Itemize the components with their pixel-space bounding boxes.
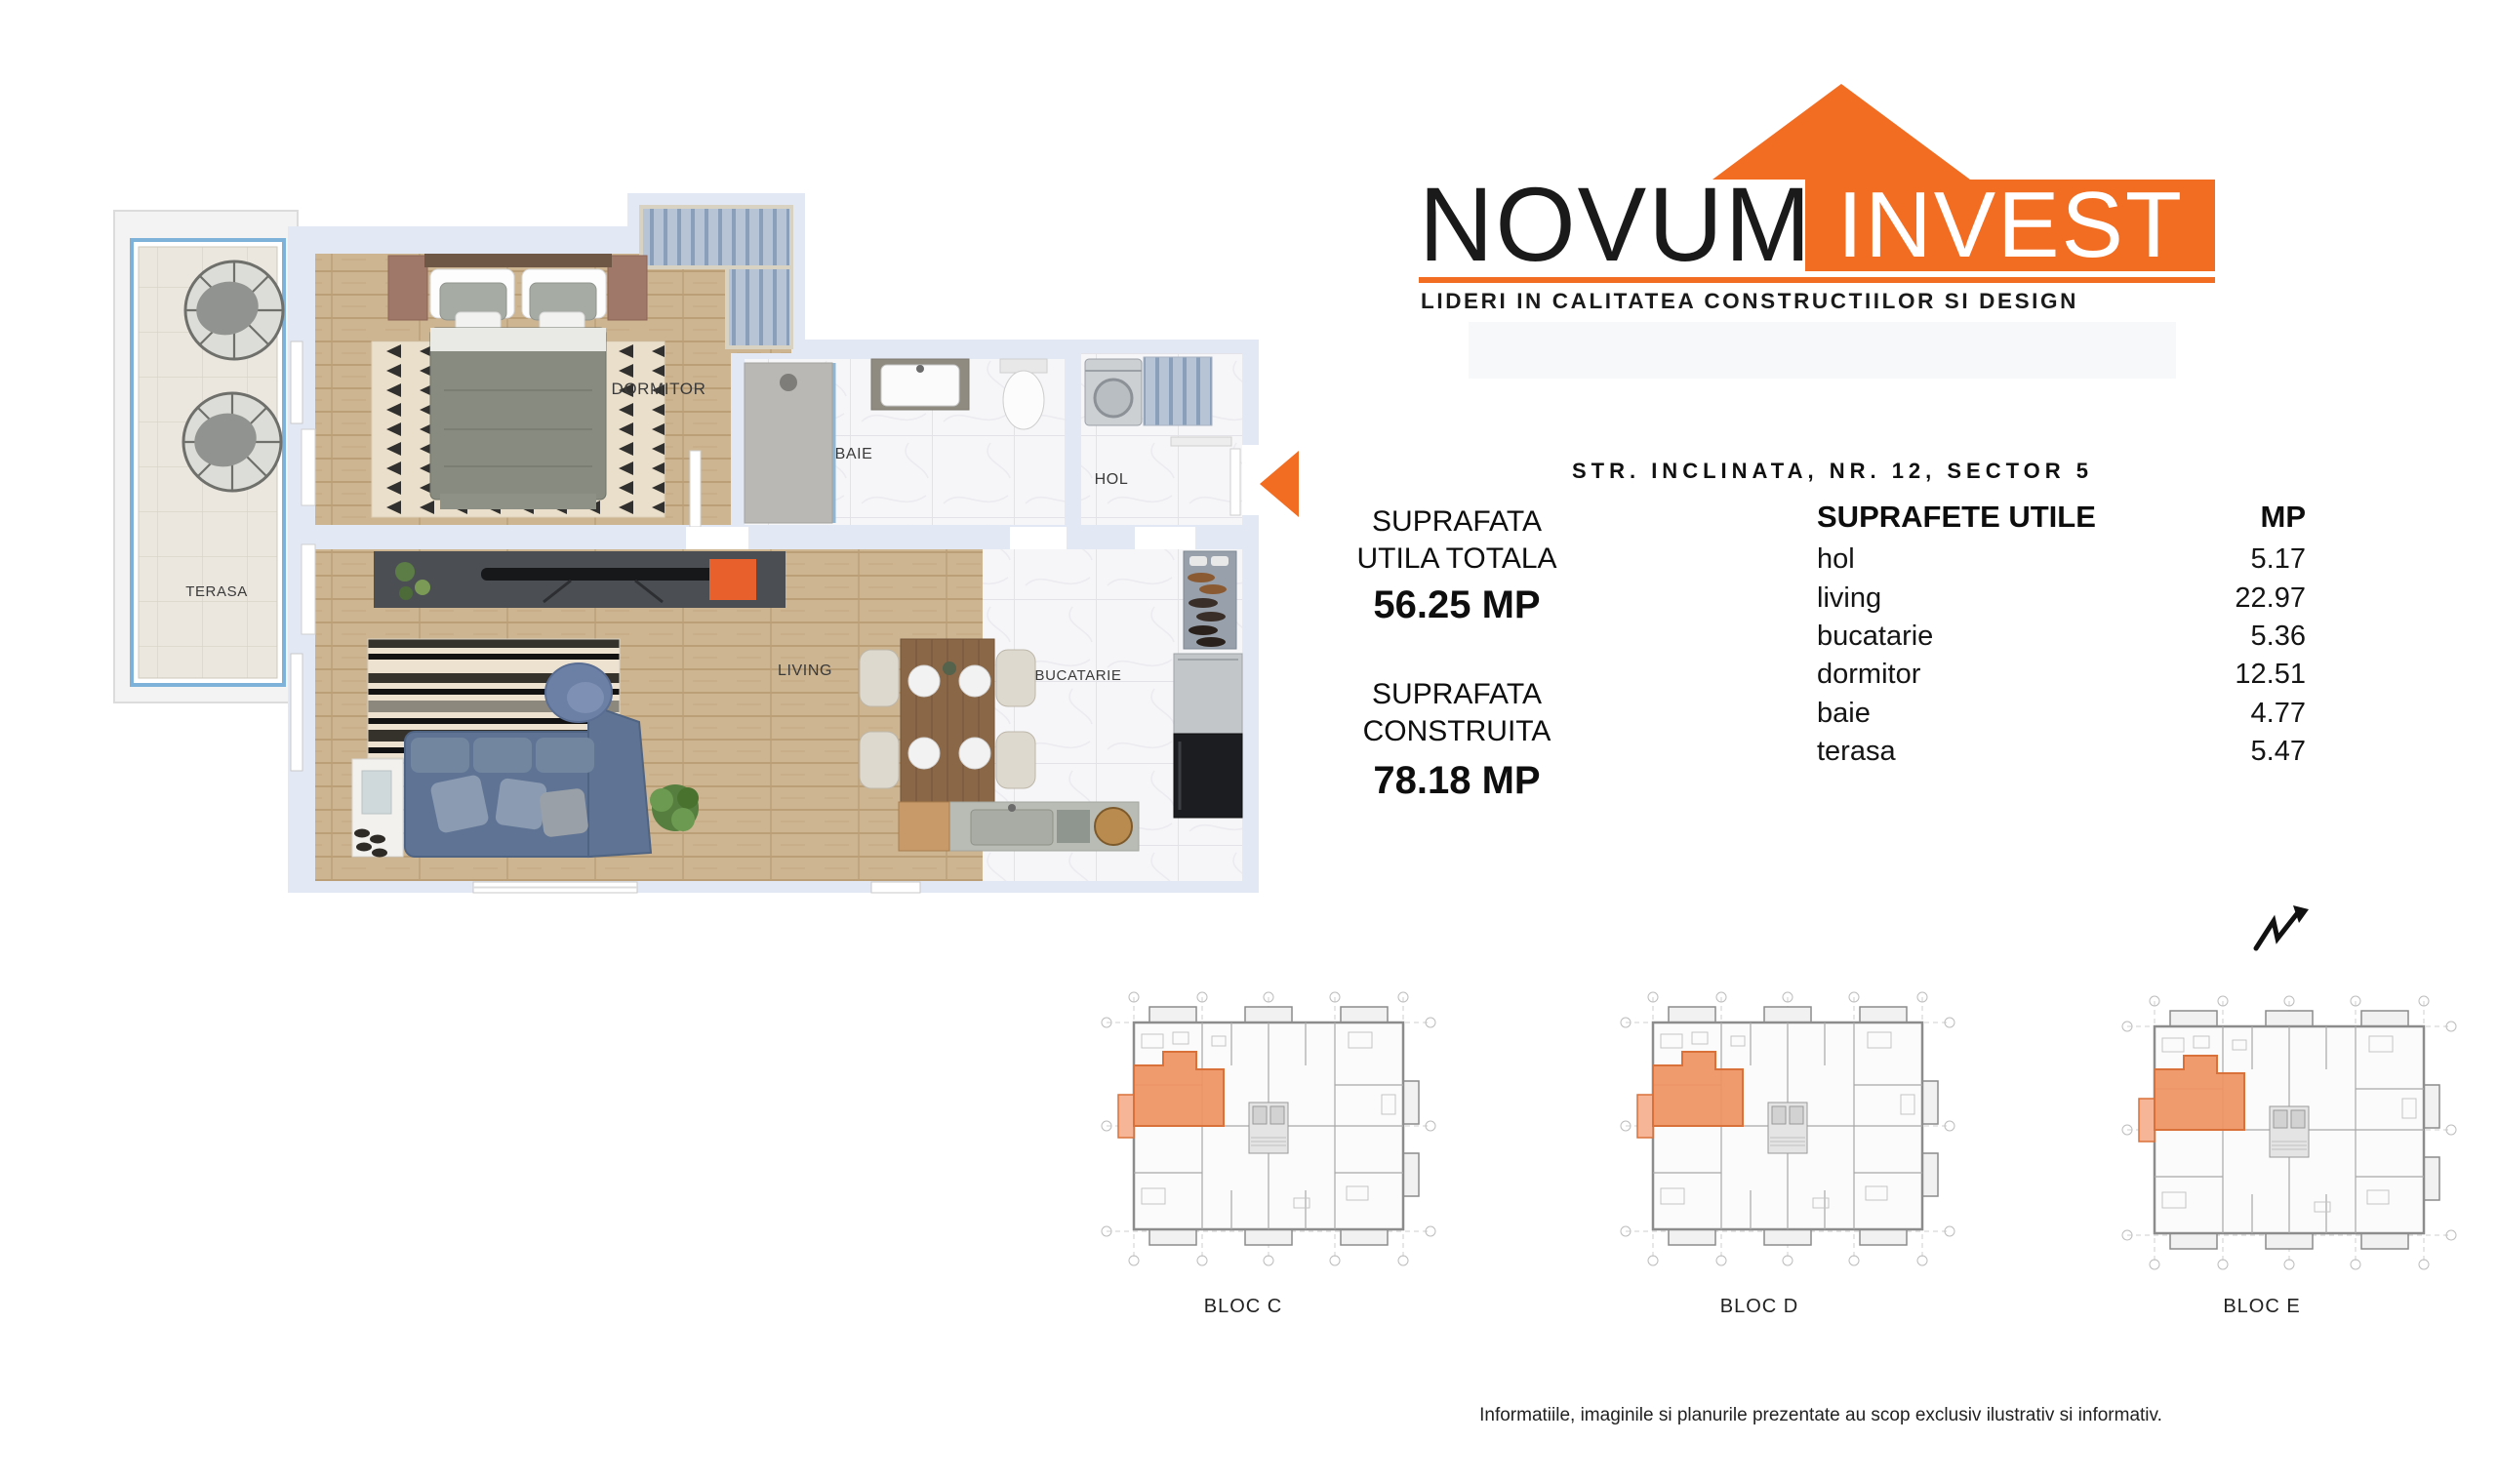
shoe-rack bbox=[1184, 551, 1236, 649]
bloc-d-plan bbox=[1614, 987, 1961, 1270]
row-mp: 22.97 bbox=[2235, 582, 2306, 615]
row-room: living bbox=[1817, 582, 1881, 615]
room-label-hol: HOL bbox=[1053, 471, 1170, 489]
row-mp: 4.77 bbox=[2251, 698, 2306, 730]
bedroom-door-leaf bbox=[690, 451, 701, 527]
drying-rack bbox=[1144, 357, 1212, 425]
north-arrow-icon bbox=[2244, 900, 2313, 960]
bloc-e-label: BLOC E bbox=[2115, 1296, 2408, 1318]
row-room: dormitor bbox=[1817, 659, 1920, 691]
logo-brand-primary: NOVUM bbox=[1419, 172, 1813, 277]
room-label-dormitor: DORMITOR bbox=[590, 380, 727, 399]
brochure-page: TERASA DORMITOR BAIE HOL LIVING BUCATARI… bbox=[0, 0, 2498, 1484]
areas-table-title: SUPRAFETE UTILE bbox=[1817, 500, 2096, 535]
shower bbox=[745, 363, 834, 523]
useful-area-label-line2: UTILA TOTALA bbox=[1340, 542, 1574, 576]
tv-console bbox=[374, 551, 786, 608]
apartment-floorplan bbox=[112, 107, 1264, 937]
row-room: hol bbox=[1817, 543, 1855, 576]
built-area-label-line1: SUPRAFATA bbox=[1340, 678, 1574, 711]
room-label-living: LIVING bbox=[737, 662, 873, 680]
built-area-label-line2: CONSTRUITA bbox=[1340, 715, 1574, 748]
useful-area-label-line1: SUPRAFATA bbox=[1340, 505, 1574, 539]
row-mp: 5.47 bbox=[2251, 736, 2306, 768]
row-mp: 5.17 bbox=[2251, 543, 2306, 576]
logo-tagline: LIDERI IN CALITATEA CONSTRUCTIILOR SI DE… bbox=[1421, 289, 2215, 314]
row-mp: 5.36 bbox=[2251, 621, 2306, 653]
table-row: bucatarie 5.36 bbox=[1817, 621, 2306, 653]
bloc-d-label: BLOC D bbox=[1613, 1296, 1906, 1318]
row-room: bucatarie bbox=[1817, 621, 1933, 653]
table-row: living 22.97 bbox=[1817, 582, 2306, 615]
built-area-value: 78.18 MP bbox=[1340, 759, 1574, 803]
row-room: terasa bbox=[1817, 736, 1896, 768]
table-row: terasa 5.47 bbox=[1817, 736, 2306, 768]
faint-watermark-band bbox=[1469, 322, 2176, 379]
row-mp: 12.51 bbox=[2235, 659, 2306, 691]
armchair bbox=[545, 663, 612, 722]
entrance-arrow-icon bbox=[1260, 451, 1299, 517]
floorplan-drawing bbox=[112, 107, 1264, 937]
novum-invest-logo: NOVUM INVEST LIDERI IN CALITATEA CONSTRU… bbox=[1405, 57, 2225, 320]
washing-machine bbox=[1085, 359, 1142, 425]
side-table bbox=[352, 759, 403, 858]
logo-brand-secondary: INVEST bbox=[1836, 172, 2183, 279]
room-label-baie: BAIE bbox=[805, 446, 903, 463]
areas-table-unit: MP bbox=[2261, 500, 2307, 535]
room-label-terasa: TERASA bbox=[158, 583, 275, 600]
project-address: STR. INCLINATA, NR. 12, SECTOR 5 bbox=[1405, 459, 2260, 484]
hall-shelf bbox=[1171, 437, 1231, 446]
bloc-c-label: BLOC C bbox=[1097, 1296, 1390, 1318]
room-label-bucatarie: BUCATARIE bbox=[1000, 667, 1156, 684]
logo-underline bbox=[1419, 277, 2215, 283]
areas-table-header: SUPRAFETE UTILE MP bbox=[1817, 500, 2306, 535]
bathroom-sink bbox=[871, 359, 969, 410]
bloc-c-plan bbox=[1095, 987, 1442, 1270]
kitchen-counter bbox=[899, 802, 1139, 851]
table-row: baie 4.77 bbox=[1817, 698, 2306, 730]
table-row: hol 5.17 bbox=[1817, 543, 2306, 576]
terrace-chair bbox=[185, 261, 283, 359]
disclaimer-text: Informatiile, imaginile si planurile pre… bbox=[1421, 1405, 2221, 1426]
terrace-chair bbox=[183, 393, 281, 491]
logo-orange-box: INVEST bbox=[1805, 180, 2215, 271]
fridge-column bbox=[1174, 654, 1242, 818]
bloc-e-plan bbox=[2115, 991, 2463, 1274]
useful-area-value: 56.25 MP bbox=[1340, 583, 1574, 627]
table-row: dormitor 12.51 bbox=[1817, 659, 2306, 691]
terrace bbox=[114, 211, 298, 702]
row-room: baie bbox=[1817, 698, 1871, 730]
